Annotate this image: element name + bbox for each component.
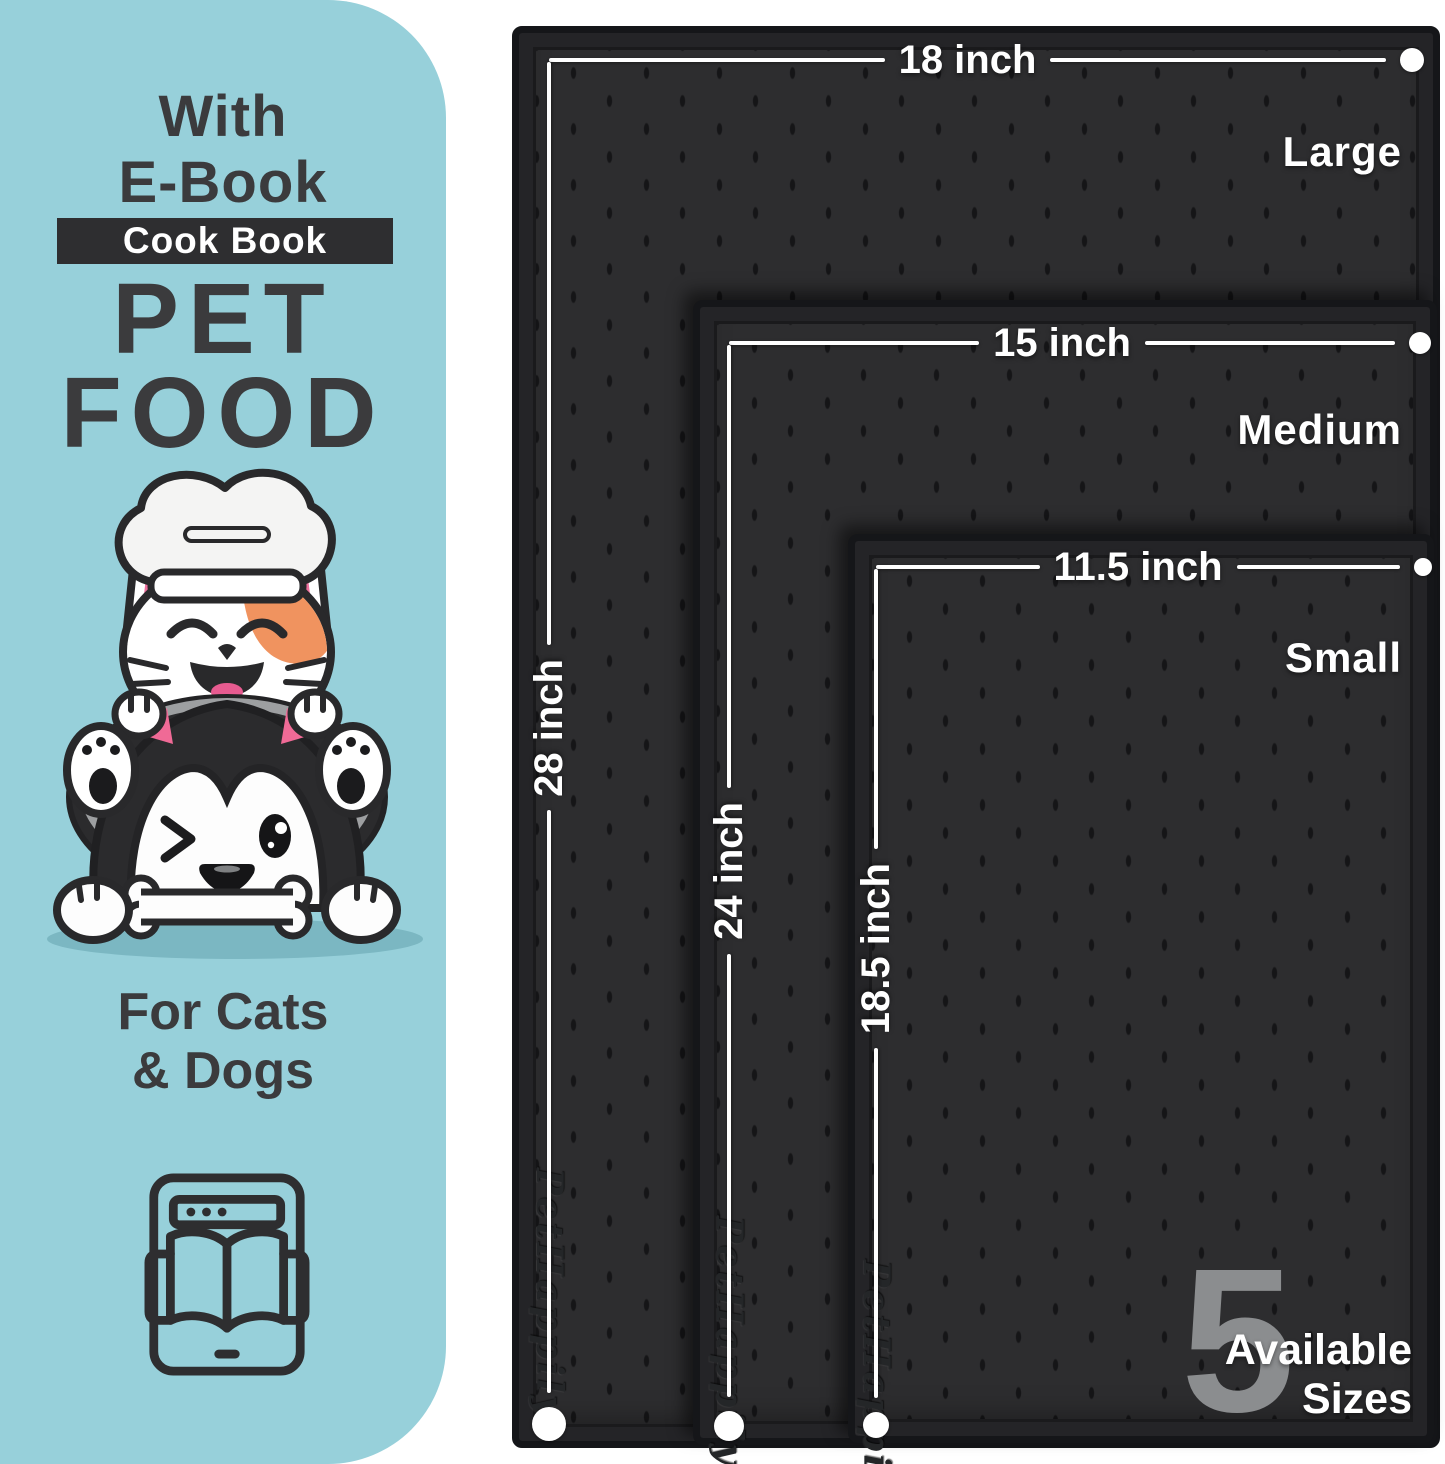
dimension-line-segment — [874, 1048, 878, 1398]
dimension-line-segment — [547, 810, 551, 1393]
available-sizes-line1: Available — [1225, 1326, 1412, 1375]
size-name-small: Small — [1285, 634, 1402, 682]
width-dimension-large: 18 inch — [549, 36, 1424, 84]
ebook-heading-line1: With — [0, 84, 446, 150]
height-dimension-small: 18.5 inch — [852, 569, 900, 1438]
dimension-endpoint-dot — [1409, 332, 1431, 354]
available-sizes-text: Available Sizes — [1225, 1326, 1412, 1424]
width-label-medium: 15 inch — [993, 321, 1131, 366]
cook-book-badge: Cook Book — [57, 218, 393, 264]
ebook-heading: With E-Book — [0, 84, 446, 216]
dimension-line-segment — [876, 565, 1040, 569]
dimension-endpoint-dot — [532, 1407, 566, 1441]
cat-dog-chef-illustration — [35, 462, 435, 962]
dimension-endpoint-dot — [1414, 558, 1432, 576]
pet-food-title-line2: FOOD — [0, 366, 446, 460]
height-dimension-large: 28 inch — [525, 62, 573, 1441]
dimension-endpoint-dot — [714, 1411, 744, 1441]
for-cats-dogs-line2: & Dogs — [0, 1042, 446, 1101]
ebook-heading-line2: E-Book — [0, 150, 446, 216]
for-cats-dogs-line1: For Cats — [0, 983, 446, 1042]
available-sizes-line2: Sizes — [1225, 1375, 1412, 1424]
dimension-line-segment — [1237, 565, 1401, 569]
ebook-tablet-icon — [143, 1172, 311, 1377]
dimension-line-segment — [1050, 58, 1386, 62]
pet-food-title-line1: PET — [0, 272, 446, 366]
height-dimension-medium: 24 inch — [705, 345, 753, 1441]
width-dimension-small: 11.5 inch — [876, 543, 1432, 591]
dimension-line-segment — [729, 341, 979, 345]
dimension-endpoint-dot — [1400, 48, 1424, 72]
dimension-line-segment — [1145, 341, 1395, 345]
height-label-large: 28 inch — [527, 659, 572, 797]
product-size-infographic: With E-Book Cook Book PET FOOD — [0, 0, 1445, 1464]
left-info-panel: With E-Book Cook Book PET FOOD — [0, 0, 446, 1464]
size-name-large: Large — [1283, 128, 1402, 176]
size-name-medium: Medium — [1237, 406, 1402, 454]
for-cats-dogs-text: For Cats & Dogs — [0, 983, 446, 1101]
width-dimension-medium: 15 inch — [729, 319, 1431, 367]
width-label-large: 18 inch — [899, 38, 1037, 83]
dimension-line-segment — [874, 569, 878, 849]
height-label-small: 18.5 inch — [854, 863, 899, 1034]
dimension-line-segment — [727, 345, 731, 788]
dimension-endpoint-dot — [863, 1412, 889, 1438]
pet-food-title: PET FOOD — [0, 272, 446, 460]
dimension-line-segment — [727, 954, 731, 1397]
dimension-line-segment — [549, 58, 885, 62]
dimension-line-segment — [547, 62, 551, 645]
width-label-small: 11.5 inch — [1054, 545, 1223, 590]
height-label-medium: 24 inch — [707, 802, 752, 940]
